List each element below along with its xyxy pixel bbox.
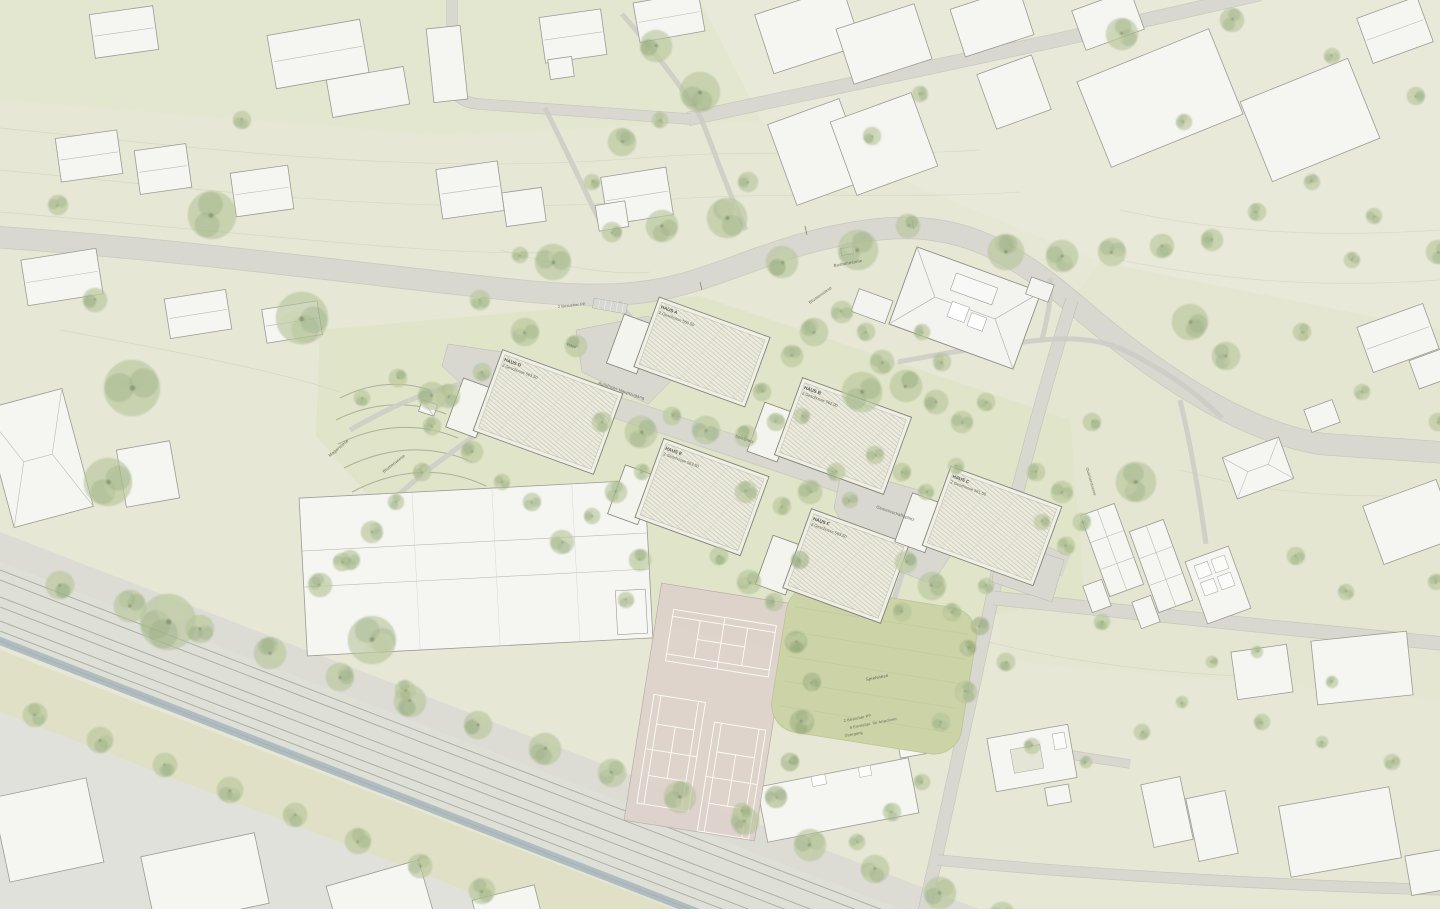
tree xyxy=(652,112,668,128)
tree xyxy=(870,350,894,374)
tree xyxy=(348,616,396,664)
tree xyxy=(625,416,657,448)
tree xyxy=(692,416,720,444)
tree xyxy=(866,446,884,464)
tree xyxy=(389,369,407,387)
tree xyxy=(912,86,928,102)
tree xyxy=(1034,514,1050,530)
tree xyxy=(883,803,901,821)
site-plan: HAUS D2 Geschosse 563.50HAUS A2 Geschoss… xyxy=(0,0,1440,919)
tree xyxy=(629,549,651,571)
existing-building xyxy=(89,6,159,58)
tree xyxy=(857,323,875,341)
tree xyxy=(1201,229,1223,251)
tree xyxy=(345,828,371,854)
tree xyxy=(773,497,791,515)
tree xyxy=(188,191,236,239)
tree xyxy=(781,345,803,367)
tree xyxy=(1251,646,1263,658)
tree xyxy=(23,703,47,727)
tree xyxy=(765,593,783,611)
tree xyxy=(1324,48,1340,64)
tree xyxy=(791,551,809,569)
tree xyxy=(1116,462,1156,502)
tree xyxy=(276,292,328,344)
tree xyxy=(1316,736,1328,748)
tree xyxy=(584,508,600,524)
tree xyxy=(1073,513,1091,531)
tree xyxy=(646,210,678,242)
tree xyxy=(494,474,510,490)
existing-building xyxy=(230,165,294,217)
tree xyxy=(283,803,307,827)
tree xyxy=(794,829,826,861)
tree xyxy=(523,493,541,511)
tree xyxy=(1354,384,1370,400)
tree xyxy=(971,617,989,635)
tree xyxy=(470,290,490,310)
tree xyxy=(664,781,696,813)
existing-building xyxy=(1311,631,1413,705)
tree xyxy=(842,372,882,412)
tree xyxy=(584,174,600,190)
tree xyxy=(766,246,798,278)
tree xyxy=(535,244,571,280)
tree xyxy=(469,878,495,904)
tree xyxy=(735,481,757,503)
tree xyxy=(512,247,528,263)
tree xyxy=(988,234,1024,270)
tree xyxy=(955,681,977,703)
existing-building xyxy=(426,25,468,102)
existing-building xyxy=(55,130,123,182)
tree xyxy=(800,318,828,346)
tree xyxy=(84,458,132,506)
tree xyxy=(602,222,622,242)
tree xyxy=(418,382,446,410)
tree xyxy=(918,484,934,500)
tree xyxy=(1384,754,1400,770)
tree xyxy=(960,640,976,656)
tree xyxy=(924,390,948,414)
tree xyxy=(114,590,146,622)
tree xyxy=(1150,234,1174,258)
tree xyxy=(1344,252,1360,268)
tree xyxy=(153,753,177,777)
tree xyxy=(803,673,821,691)
tree xyxy=(798,480,822,504)
tree xyxy=(592,412,612,432)
tree xyxy=(753,383,771,401)
tree xyxy=(932,713,950,731)
tree xyxy=(83,288,107,312)
tree xyxy=(948,458,964,474)
tree xyxy=(849,834,865,850)
tree xyxy=(1220,8,1244,32)
tree xyxy=(738,172,758,192)
tree xyxy=(997,653,1015,671)
tree xyxy=(233,111,251,129)
tree xyxy=(707,198,747,238)
tree xyxy=(104,360,160,416)
tree xyxy=(550,530,574,554)
tree xyxy=(1304,174,1320,190)
existing-building xyxy=(134,144,192,195)
tree xyxy=(1051,481,1073,503)
tree xyxy=(896,214,920,238)
tree xyxy=(461,441,483,463)
tree xyxy=(914,324,930,340)
tree xyxy=(408,854,432,878)
tree xyxy=(640,30,672,62)
tree xyxy=(1366,208,1382,224)
tree xyxy=(893,463,911,481)
tree xyxy=(863,127,881,145)
tree xyxy=(186,615,214,643)
tree xyxy=(1094,614,1110,630)
tree xyxy=(1057,537,1075,555)
tree xyxy=(794,408,810,424)
tree xyxy=(1326,676,1338,688)
tree xyxy=(1407,87,1425,105)
tree xyxy=(608,128,636,156)
tree xyxy=(1172,304,1208,340)
tree xyxy=(464,711,492,739)
existing-building xyxy=(1045,784,1072,806)
tree xyxy=(827,463,845,481)
tree xyxy=(1024,738,1040,754)
tree xyxy=(1046,240,1078,272)
tree xyxy=(217,777,243,803)
existing-building xyxy=(548,56,575,79)
tree xyxy=(1293,323,1311,341)
tree xyxy=(618,592,634,608)
tree xyxy=(1098,238,1126,266)
tree xyxy=(785,631,807,653)
tree xyxy=(1106,18,1138,50)
tree xyxy=(87,727,113,753)
tree xyxy=(737,570,761,594)
tree xyxy=(529,733,561,765)
tree xyxy=(924,877,956,909)
tree xyxy=(511,318,539,346)
existing-building xyxy=(539,9,607,63)
tree xyxy=(605,481,627,503)
tree xyxy=(354,390,370,406)
tree xyxy=(1176,696,1188,708)
tree xyxy=(842,492,858,508)
tree xyxy=(308,573,332,597)
tree xyxy=(710,547,728,565)
tree xyxy=(663,407,681,425)
tree xyxy=(895,551,917,573)
tree xyxy=(767,413,785,431)
tree xyxy=(333,553,351,571)
existing-building xyxy=(436,161,504,219)
tree xyxy=(361,521,383,543)
existing-building xyxy=(502,187,546,226)
tree xyxy=(1254,714,1270,730)
tree xyxy=(1027,463,1045,481)
tree xyxy=(861,855,889,883)
tree xyxy=(423,417,441,435)
tree xyxy=(1080,756,1092,768)
tree xyxy=(326,663,354,691)
tree xyxy=(890,370,922,402)
tree xyxy=(1134,724,1150,740)
tree xyxy=(790,710,814,734)
tree xyxy=(1212,342,1240,370)
tree xyxy=(1338,584,1354,600)
tree xyxy=(48,195,68,215)
tree xyxy=(1248,203,1266,221)
tree xyxy=(473,363,491,381)
tree xyxy=(634,464,650,480)
tree xyxy=(914,774,930,790)
tree xyxy=(1176,114,1192,130)
tree xyxy=(388,494,404,510)
tree xyxy=(977,393,995,411)
tree xyxy=(1083,413,1101,431)
tree xyxy=(395,680,415,700)
tree xyxy=(918,572,946,600)
tree xyxy=(933,353,951,371)
tree xyxy=(781,753,799,771)
tree xyxy=(413,463,431,481)
tree xyxy=(680,72,720,112)
tree xyxy=(46,571,74,599)
tree xyxy=(254,637,286,669)
tree xyxy=(733,803,751,821)
tree xyxy=(598,759,626,787)
tree xyxy=(831,301,853,323)
tree xyxy=(893,603,911,621)
tree xyxy=(951,411,973,433)
tree xyxy=(978,578,994,594)
tree xyxy=(1287,547,1305,565)
tree xyxy=(765,786,787,808)
tree xyxy=(1206,656,1218,668)
tree xyxy=(943,603,961,621)
site-plan-canvas: HAUS D2 Geschosse 563.50HAUS A2 Geschoss… xyxy=(0,0,1440,919)
